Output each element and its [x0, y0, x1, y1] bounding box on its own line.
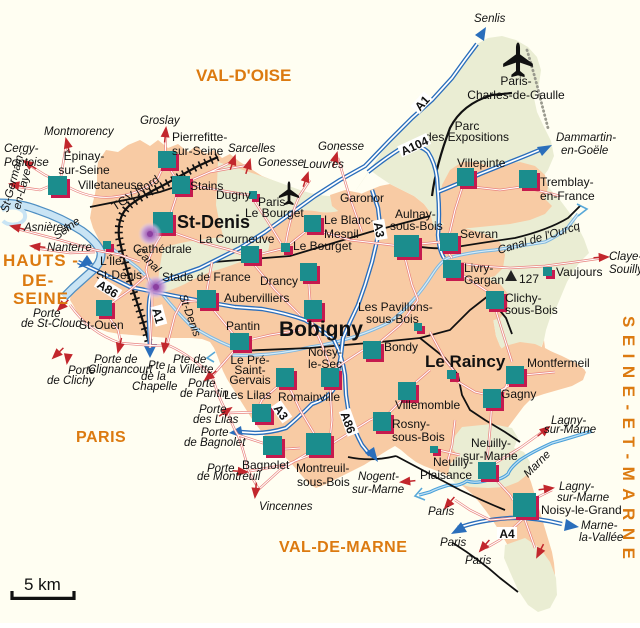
svg-text:Le Bourget: Le Bourget: [245, 206, 304, 220]
svg-text:La Courneuve: La Courneuve: [199, 232, 275, 246]
svg-text:Drancy: Drancy: [260, 274, 298, 288]
svg-text:Gonesse: Gonesse: [318, 141, 364, 153]
svg-text:Romainville: Romainville: [278, 390, 340, 404]
svg-text:PARIS: PARIS: [76, 429, 126, 446]
svg-text:Vincennes: Vincennes: [259, 501, 313, 513]
svg-text:Gervais: Gervais: [229, 373, 270, 387]
svg-text:Paris: Paris: [465, 555, 491, 567]
svg-text:Le Blanc-: Le Blanc-: [324, 213, 375, 227]
svg-text:Le Raincy: Le Raincy: [425, 352, 506, 371]
svg-text:St-Denis: St-Denis: [177, 212, 250, 232]
svg-text:Garonor: Garonor: [340, 191, 384, 205]
svg-text:Villepinte: Villepinte: [457, 156, 506, 170]
svg-text:sous-Bois: sous-Bois: [390, 219, 443, 233]
svg-text:A4: A4: [499, 527, 515, 541]
svg-text:Charles-de-Gaulle: Charles-de-Gaulle: [467, 88, 565, 102]
svg-text:127: 127: [519, 272, 539, 286]
svg-text:Groslay: Groslay: [140, 115, 181, 127]
svg-text:sous-Bois: sous-Bois: [297, 475, 350, 489]
svg-text:Stade de France: Stade de France: [162, 270, 251, 284]
svg-text:Plaisance: Plaisance: [420, 468, 472, 482]
svg-text:St-Ouen: St-Ouen: [79, 318, 124, 332]
svg-text:Aubervilliers: Aubervilliers: [224, 291, 289, 305]
svg-text:L'Île-: L'Île-: [100, 253, 126, 268]
svg-text:Souilly: Souilly: [609, 264, 640, 276]
svg-text:Louvres: Louvres: [303, 159, 344, 171]
svg-text:sur-Marne: sur-Marne: [544, 424, 596, 436]
svg-text:Paris: Paris: [428, 506, 454, 518]
svg-text:des Lilas: des Lilas: [193, 414, 239, 426]
svg-text:DE-: DE-: [22, 271, 54, 290]
svg-text:Montfermeil: Montfermeil: [527, 356, 590, 370]
svg-text:Sevran: Sevran: [460, 227, 498, 241]
svg-text:des Expositions: des Expositions: [425, 130, 509, 144]
svg-text:5 km: 5 km: [24, 575, 61, 594]
svg-text:sur-Seine: sur-Seine: [58, 163, 110, 177]
svg-text:sous-Bois: sous-Bois: [366, 312, 419, 326]
svg-text:HAUTS -: HAUTS -: [3, 251, 79, 270]
svg-text:Bobigny: Bobigny: [279, 318, 363, 341]
svg-text:Neuilly-: Neuilly-: [433, 455, 473, 469]
svg-text:Pantin: Pantin: [226, 319, 260, 333]
svg-text:Villemomble: Villemomble: [395, 398, 460, 412]
svg-text:Dammartin-: Dammartin-: [556, 132, 616, 144]
svg-text:Nogent-: Nogent-: [358, 471, 399, 483]
svg-text:Montreuil-: Montreuil-: [296, 461, 349, 475]
svg-text:en-France: en-France: [540, 189, 595, 203]
svg-text:de St-Cloud: de St-Cloud: [21, 318, 82, 330]
svg-text:Mesnil: Mesnil: [324, 227, 359, 241]
svg-text:sur-Marne: sur-Marne: [557, 492, 609, 504]
svg-text:sous-Bois: sous-Bois: [505, 303, 558, 317]
svg-text:A3: A3: [371, 221, 388, 239]
svg-text:Gonesse: Gonesse: [258, 157, 304, 169]
svg-text:Gagny: Gagny: [501, 387, 536, 401]
svg-text:Épinay-: Épinay-: [64, 148, 105, 163]
svg-text:Paris: Paris: [440, 537, 466, 549]
svg-text:Neuilly-: Neuilly-: [471, 436, 511, 450]
svg-text:SEINE: SEINE: [13, 289, 69, 308]
svg-text:la-Vallée: la-Vallée: [579, 532, 623, 544]
svg-text:Paris-: Paris-: [500, 74, 531, 88]
svg-text:le-Sec: le-Sec: [308, 357, 342, 371]
svg-text:Vaujours: Vaujours: [556, 265, 602, 279]
svg-text:sous-Bois: sous-Bois: [392, 430, 445, 444]
svg-text:sur-Seine: sur-Seine: [172, 144, 224, 158]
svg-text:en-Goële: en-Goële: [561, 145, 608, 157]
svg-text:Les Lilas: Les Lilas: [224, 388, 271, 402]
svg-text:Marne-: Marne-: [581, 520, 618, 532]
svg-text:Bagnolet: Bagnolet: [242, 458, 290, 472]
svg-text:sur-Marne: sur-Marne: [352, 484, 404, 496]
svg-text:VAL-D'OISE: VAL-D'OISE: [196, 66, 291, 85]
svg-text:VAL-DE-MARNE: VAL-DE-MARNE: [279, 539, 407, 556]
svg-text:Dugny: Dugny: [216, 188, 251, 202]
svg-text:Sarcelles: Sarcelles: [228, 143, 276, 155]
svg-text:Gargan: Gargan: [464, 273, 504, 287]
svg-text:de Montreuil: de Montreuil: [197, 471, 261, 483]
svg-text:Claye-: Claye-: [609, 251, 640, 263]
svg-text:la Villette: la Villette: [167, 364, 213, 376]
svg-text:Senlis: Senlis: [474, 13, 506, 25]
svg-text:SEINE-ET-MARNE: SEINE-ET-MARNE: [619, 316, 638, 566]
svg-text:Pierrefitte-: Pierrefitte-: [172, 130, 227, 144]
svg-text:Montmorency: Montmorency: [44, 126, 115, 138]
svg-text:Chapelle: Chapelle: [132, 381, 177, 393]
svg-text:de Pantin: de Pantin: [180, 388, 229, 400]
svg-text:Tremblay-: Tremblay-: [540, 175, 594, 189]
svg-text:Le Bourget: Le Bourget: [293, 239, 352, 253]
svg-text:de Clichy: de Clichy: [47, 375, 96, 387]
svg-text:Bondy: Bondy: [384, 340, 418, 354]
svg-text:de Bagnolet: de Bagnolet: [184, 437, 246, 449]
svg-text:Noisy-le-Grand: Noisy-le-Grand: [541, 503, 622, 517]
svg-text:Rosny-: Rosny-: [392, 417, 430, 431]
